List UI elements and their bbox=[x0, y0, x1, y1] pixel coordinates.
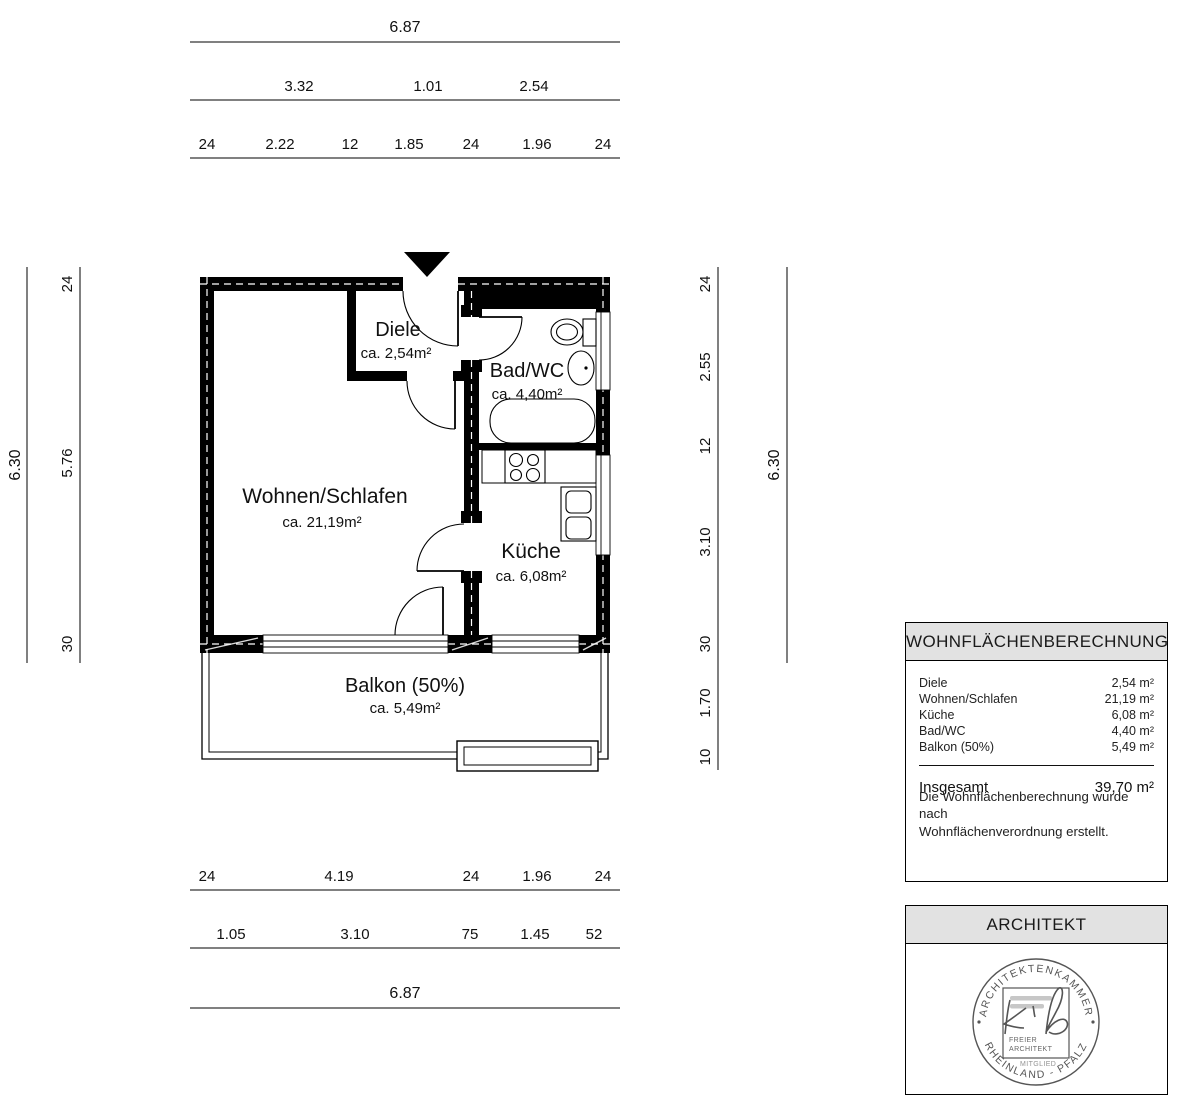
room-area-bad: ca. 4,40m² bbox=[492, 386, 563, 403]
svg-text:24: 24 bbox=[697, 276, 714, 293]
table-row: Bad/WC 4,40 m² bbox=[919, 723, 1154, 739]
svg-text:6.30: 6.30 bbox=[7, 449, 24, 480]
table-note: Die Wohnflächenberechnung wurde nach Woh… bbox=[919, 788, 1154, 841]
svg-text:12: 12 bbox=[342, 136, 359, 153]
svg-text:6.30: 6.30 bbox=[766, 449, 783, 480]
architect-stamp: ARCHITEKTENKAMMER RHEINLAND - PFALZ FREI… bbox=[906, 944, 1166, 1094]
svg-text:52: 52 bbox=[586, 926, 603, 943]
room-label-kueche: Küche bbox=[501, 540, 561, 563]
dimension-ticks bbox=[19, 34, 795, 1016]
stamp-signature bbox=[1004, 988, 1067, 1034]
dimension-lines bbox=[27, 42, 787, 1008]
stamp-ring-top-text: ARCHITEKTENKAMMER bbox=[977, 963, 1095, 1018]
svg-text:2.55: 2.55 bbox=[697, 352, 714, 381]
svg-text:3.32: 3.32 bbox=[284, 78, 313, 95]
stamp-mitglied-text: MITGLIED bbox=[1020, 1061, 1056, 1068]
svg-text:1.01: 1.01 bbox=[413, 78, 442, 95]
room-area-wohnen: ca. 21,19m² bbox=[282, 514, 361, 531]
dim-top-total: 6.87 bbox=[389, 19, 420, 36]
stamp-blurred-name-line bbox=[1010, 996, 1052, 1001]
svg-text:3.10: 3.10 bbox=[697, 527, 714, 556]
room-label-balkon: Balkon (50%) bbox=[345, 675, 465, 697]
table-row: Wohnen/Schlafen 21,19 m² bbox=[919, 691, 1154, 707]
toilet-tank bbox=[583, 319, 596, 346]
area-calculation-panel: WOHNFLÄCHENBERECHNUNG Diele 2,54 m² Wohn… bbox=[905, 622, 1168, 882]
room-area-kueche: ca. 6,08m² bbox=[496, 568, 567, 585]
architect-panel: ARCHITEKT ARCHITEKTENKAMMER RHEINLAND - … bbox=[905, 905, 1168, 1095]
table-row: Balkon (50%) 5,49 m² bbox=[919, 739, 1154, 755]
kitchen-fixtures bbox=[482, 450, 596, 541]
svg-text:24: 24 bbox=[463, 868, 480, 885]
table-divider bbox=[919, 765, 1154, 766]
architect-panel-title: ARCHITEKT bbox=[906, 906, 1167, 944]
svg-text:10: 10 bbox=[697, 749, 714, 766]
svg-text:3.10: 3.10 bbox=[340, 926, 369, 943]
bath-sink bbox=[568, 351, 594, 385]
svg-text:1.85: 1.85 bbox=[394, 136, 423, 153]
stamp-freier-text: FREIER bbox=[1009, 1037, 1037, 1044]
svg-text:2.22: 2.22 bbox=[265, 136, 294, 153]
svg-text:5.76: 5.76 bbox=[59, 448, 76, 477]
svg-text:24: 24 bbox=[199, 868, 216, 885]
entrance-arrow bbox=[404, 252, 450, 277]
svg-text:1.70: 1.70 bbox=[697, 688, 714, 717]
balcony-planter bbox=[457, 741, 598, 771]
svg-text:30: 30 bbox=[59, 636, 76, 653]
room-area-balkon: ca. 5,49m² bbox=[370, 700, 441, 717]
svg-text:24: 24 bbox=[199, 136, 216, 153]
svg-text:1.05: 1.05 bbox=[216, 926, 245, 943]
room-label-bad: Bad/WC bbox=[490, 360, 564, 382]
stamp-architekt-text: ARCHITEKT bbox=[1009, 1046, 1053, 1053]
bathtub bbox=[490, 399, 595, 443]
svg-text:1.96: 1.96 bbox=[522, 868, 551, 885]
svg-text:24: 24 bbox=[59, 276, 76, 293]
svg-text:12: 12 bbox=[697, 438, 714, 455]
table-row: Diele 2,54 m² bbox=[919, 675, 1154, 691]
svg-text:6.87: 6.87 bbox=[389, 985, 420, 1002]
room-label-wohnen: Wohnen/Schlafen bbox=[242, 485, 407, 508]
dimension-labels: 6.87 3.32 1.01 2.54 24 2.22 12 1.85 24 1… bbox=[7, 19, 783, 1002]
svg-text:2.54: 2.54 bbox=[519, 78, 548, 95]
stamp-blurred-name-line bbox=[1010, 1004, 1044, 1009]
area-panel-title: WOHNFLÄCHENBERECHNUNG bbox=[906, 623, 1167, 661]
room-area-diele: ca. 2,54m² bbox=[361, 345, 432, 362]
svg-text:30: 30 bbox=[697, 636, 714, 653]
table-row: Küche 6,08 m² bbox=[919, 707, 1154, 723]
floorplan-sheet: 6.87 3.32 1.01 2.54 24 2.22 12 1.85 24 1… bbox=[0, 0, 1182, 1102]
svg-text:24: 24 bbox=[595, 868, 612, 885]
svg-text:1.96: 1.96 bbox=[522, 136, 551, 153]
svg-text:24: 24 bbox=[463, 136, 480, 153]
room-label-diele: Diele bbox=[375, 319, 421, 341]
svg-text:24: 24 bbox=[595, 136, 612, 153]
svg-text:75: 75 bbox=[462, 926, 479, 943]
svg-text:1.45: 1.45 bbox=[520, 926, 549, 943]
svg-text:4.19: 4.19 bbox=[324, 868, 353, 885]
